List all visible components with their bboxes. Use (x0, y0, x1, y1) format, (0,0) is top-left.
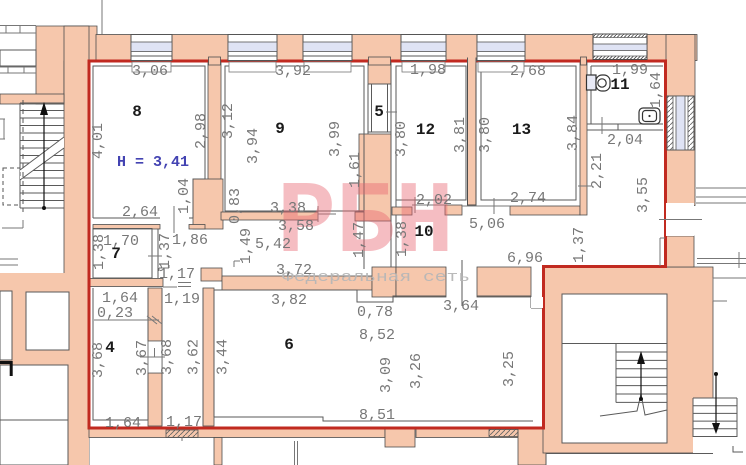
svg-text:3,09: 3,09 (378, 357, 395, 393)
svg-text:0,83: 0,83 (227, 188, 244, 224)
svg-text:3,58: 3,58 (278, 218, 314, 235)
svg-text:3,80: 3,80 (393, 121, 410, 157)
svg-text:1,86: 1,86 (172, 232, 208, 249)
svg-text:11: 11 (610, 76, 629, 94)
svg-text:3,94: 3,94 (245, 128, 262, 164)
svg-text:8,52: 8,52 (359, 327, 395, 344)
svg-text:1,17: 1,17 (166, 414, 202, 431)
svg-text:2,98: 2,98 (193, 113, 210, 149)
svg-text:1,61: 1,61 (347, 152, 364, 188)
svg-text:3,06: 3,06 (132, 63, 168, 80)
svg-text:3,84: 3,84 (565, 115, 582, 151)
svg-text:4: 4 (105, 339, 115, 357)
svg-text:3,26: 3,26 (408, 353, 425, 389)
svg-text:2,68: 2,68 (510, 63, 546, 80)
svg-text:2,21: 2,21 (589, 153, 606, 189)
svg-text:12: 12 (416, 121, 435, 139)
svg-text:0,23: 0,23 (97, 305, 133, 322)
svg-text:3,62: 3,62 (186, 339, 203, 375)
svg-text:1,70: 1,70 (103, 233, 139, 250)
svg-text:5,42: 5,42 (255, 236, 291, 253)
svg-text:1,47: 1,47 (351, 222, 368, 258)
svg-text:3,44: 3,44 (215, 339, 232, 375)
svg-text:13: 13 (512, 121, 531, 139)
svg-text:1,38: 1,38 (394, 221, 411, 257)
svg-text:8,51: 8,51 (359, 407, 395, 424)
svg-text:1,04: 1,04 (176, 178, 193, 214)
svg-text:1,37: 1,37 (571, 227, 588, 263)
svg-text:8: 8 (132, 103, 142, 121)
svg-text:2,64: 2,64 (122, 204, 158, 221)
svg-text:6: 6 (284, 336, 294, 354)
svg-text:1,64: 1,64 (648, 72, 665, 108)
svg-text:9: 9 (275, 120, 285, 138)
svg-text:3,99: 3,99 (327, 121, 344, 157)
svg-text:1,49: 1,49 (238, 228, 255, 264)
svg-text:2,02: 2,02 (416, 192, 452, 209)
svg-text:Н = 3,41: Н = 3,41 (117, 154, 189, 171)
svg-text:3,12: 3,12 (220, 103, 237, 139)
svg-text:1,19: 1,19 (164, 291, 200, 308)
svg-text:4,01: 4,01 (90, 123, 107, 159)
svg-text:3,72: 3,72 (276, 262, 312, 279)
svg-text:2,74: 2,74 (510, 190, 546, 207)
svg-text:2,04: 2,04 (607, 132, 643, 149)
svg-text:1,38: 1,38 (91, 234, 108, 270)
svg-text:3,80: 3,80 (477, 117, 494, 153)
svg-text:3,68: 3,68 (159, 339, 176, 375)
svg-text:1,98: 1,98 (410, 62, 446, 79)
svg-text:3,92: 3,92 (275, 63, 311, 80)
svg-text:3,64: 3,64 (443, 298, 479, 315)
svg-text:6,96: 6,96 (507, 250, 543, 267)
svg-text:10: 10 (414, 223, 433, 241)
svg-text:1,37: 1,37 (157, 233, 174, 269)
svg-text:3,82: 3,82 (271, 292, 307, 309)
svg-text:1,64: 1,64 (105, 415, 141, 432)
svg-text:3,38: 3,38 (270, 200, 306, 217)
svg-text:5,06: 5,06 (469, 216, 505, 233)
svg-text:3,81: 3,81 (452, 117, 469, 153)
svg-text:5: 5 (374, 103, 384, 121)
svg-text:3,25: 3,25 (501, 351, 518, 387)
svg-text:3,67: 3,67 (134, 340, 151, 376)
svg-text:7: 7 (111, 245, 121, 263)
svg-text:3,55: 3,55 (635, 177, 652, 213)
svg-text:0,78: 0,78 (357, 304, 393, 321)
